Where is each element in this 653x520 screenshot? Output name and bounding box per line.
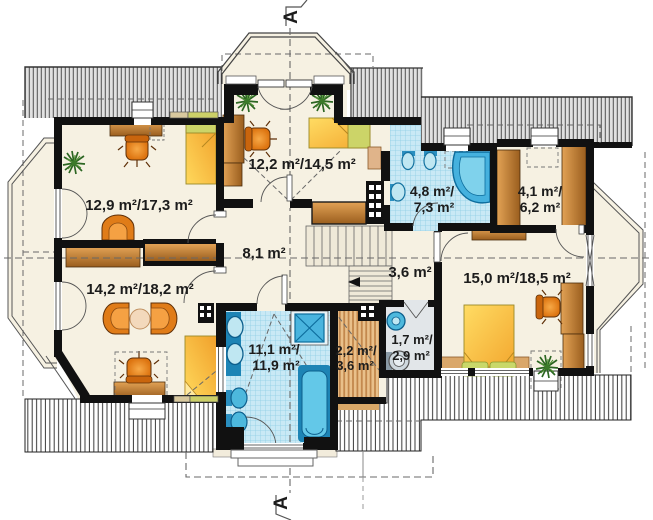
svg-text:4,1 m²/: 4,1 m²/ (518, 183, 562, 199)
svg-text:7,3 m²: 7,3 m² (414, 199, 455, 215)
svg-text:6,2 m²: 6,2 m² (520, 199, 561, 215)
svg-text:A: A (271, 496, 292, 510)
svg-text:2,2 m²/: 2,2 m²/ (335, 343, 377, 358)
svg-text:2,9 m²: 2,9 m² (392, 348, 430, 363)
svg-text:12,2 m²/14,5 m²: 12,2 m²/14,5 m² (248, 156, 356, 173)
svg-text:12,9 m²/17,3 m²: 12,9 m²/17,3 m² (85, 197, 193, 214)
svg-text:A: A (281, 10, 302, 24)
svg-text:3,6 m²: 3,6 m² (388, 264, 431, 281)
svg-text:8,1 m²: 8,1 m² (242, 245, 285, 262)
svg-text:4,8 m²/: 4,8 m²/ (410, 183, 454, 199)
svg-text:3,6 m²: 3,6 m² (336, 358, 374, 373)
svg-text:1,7 m²/: 1,7 m²/ (391, 332, 433, 347)
svg-text:14,2 m²/18,2 m²: 14,2 m²/18,2 m² (86, 281, 194, 298)
svg-text:11,1 m²/: 11,1 m²/ (248, 341, 299, 357)
svg-text:15,0 m²/18,5 m²: 15,0 m²/18,5 m² (463, 270, 571, 287)
svg-text:11,9 m²: 11,9 m² (252, 357, 300, 373)
